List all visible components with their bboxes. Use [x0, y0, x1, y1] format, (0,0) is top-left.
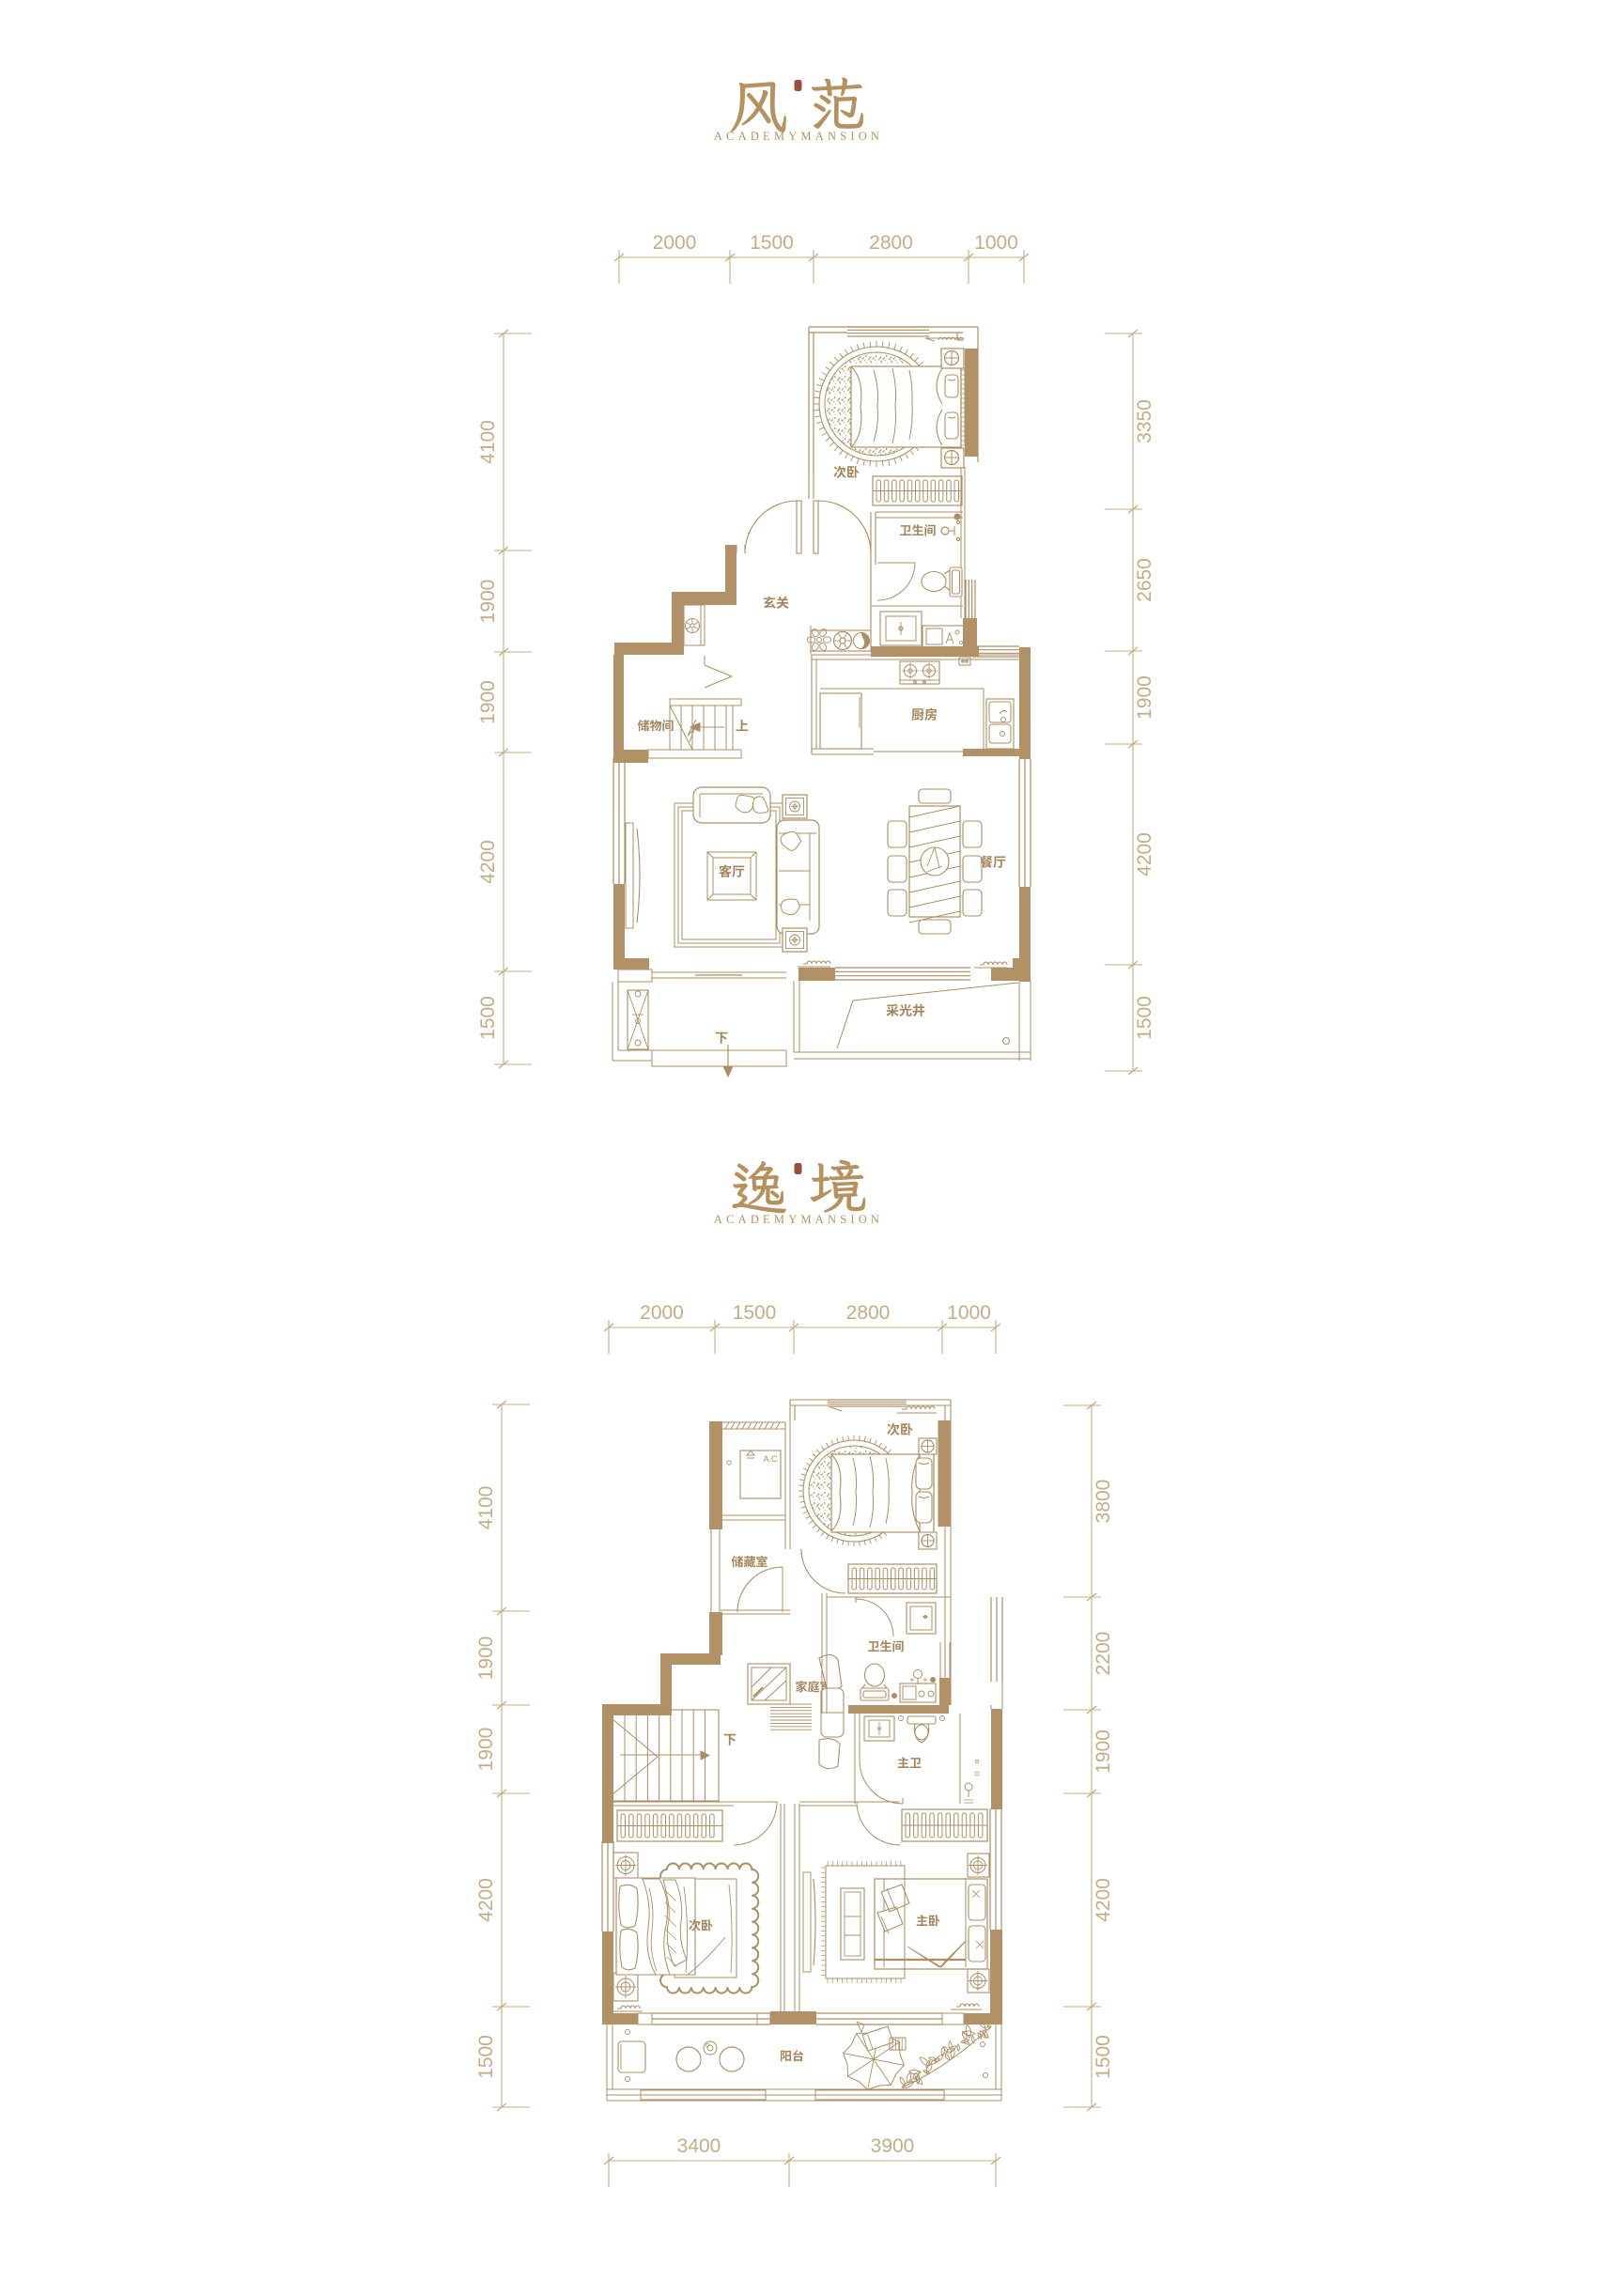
- svg-text:4200: 4200: [1134, 832, 1155, 877]
- svg-text:4200: 4200: [1093, 1878, 1114, 1922]
- svg-text:1900: 1900: [1134, 675, 1155, 720]
- svg-text:1500: 1500: [475, 2035, 497, 2079]
- svg-text:2800: 2800: [846, 1302, 891, 1324]
- svg-text:1000: 1000: [974, 232, 1018, 254]
- svg-text:2000: 2000: [640, 1302, 684, 1324]
- svg-text:1900: 1900: [475, 1637, 497, 1681]
- svg-text:1900: 1900: [477, 680, 499, 724]
- svg-text:4200: 4200: [477, 840, 499, 884]
- svg-text:1900: 1900: [475, 1728, 497, 1772]
- svg-text:4100: 4100: [475, 1486, 497, 1530]
- svg-text:4200: 4200: [475, 1878, 497, 1922]
- svg-text:3800: 3800: [1093, 1480, 1114, 1524]
- svg-text:1500: 1500: [1134, 996, 1155, 1040]
- svg-text:2000: 2000: [653, 232, 697, 254]
- svg-text:1500: 1500: [1093, 2035, 1114, 2079]
- svg-text:4100: 4100: [477, 420, 499, 464]
- svg-text:1000: 1000: [947, 1302, 991, 1324]
- svg-text:1500: 1500: [733, 1302, 777, 1324]
- svg-text:2650: 2650: [1134, 558, 1155, 602]
- svg-text:2200: 2200: [1093, 1632, 1114, 1676]
- svg-text:3350: 3350: [1134, 399, 1155, 443]
- svg-text:1500: 1500: [477, 996, 499, 1040]
- svg-text:3900: 3900: [871, 2135, 915, 2157]
- svg-text:A.C: A.C: [763, 1454, 778, 1464]
- svg-text:3400: 3400: [677, 2135, 721, 2157]
- svg-text:2800: 2800: [869, 232, 913, 254]
- svg-text:1900: 1900: [1093, 1730, 1114, 1774]
- svg-text:ACADEMYMANSION: ACADEMYMANSION: [714, 130, 883, 143]
- svg-text:ACADEMYMANSION: ACADEMYMANSION: [714, 1213, 883, 1226]
- svg-text:1500: 1500: [750, 232, 794, 254]
- svg-text:1900: 1900: [477, 580, 499, 624]
